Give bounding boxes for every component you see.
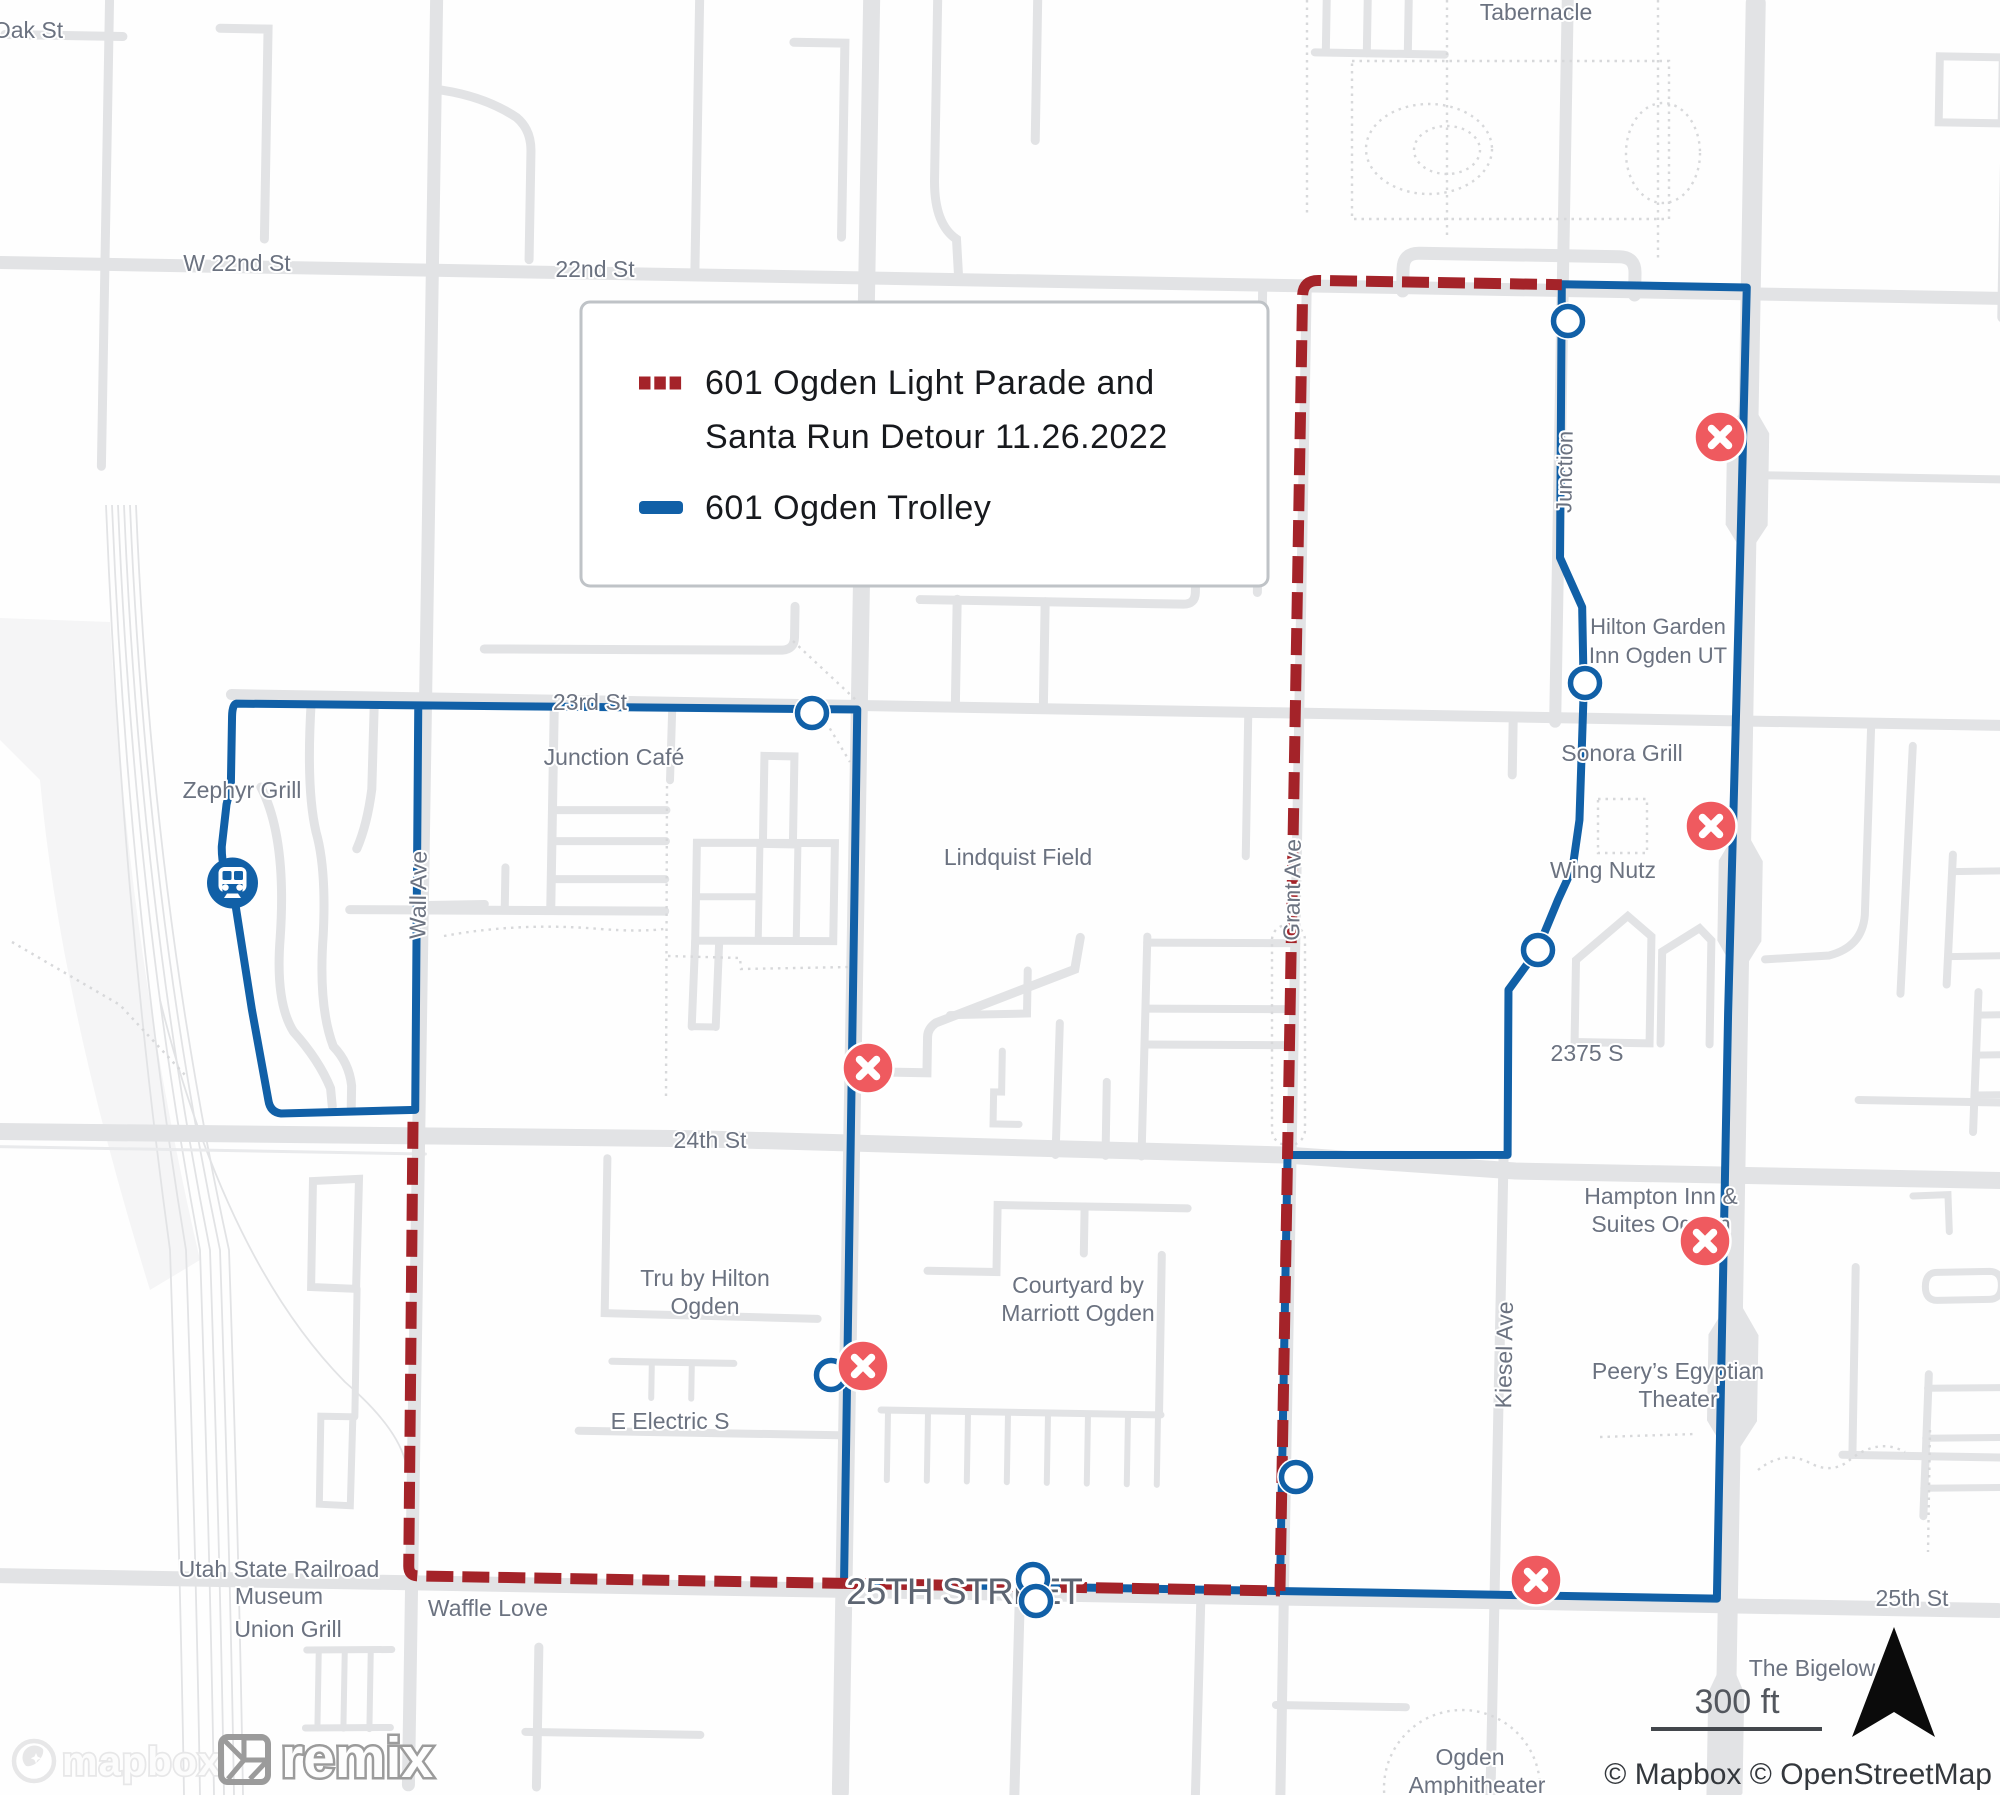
- svg-text:Utah State Railroad: Utah State Railroad: [179, 1556, 380, 1582]
- svg-text:601 Ogden Light Parade and: 601 Ogden Light Parade and: [705, 364, 1155, 402]
- svg-text:Tabernacle: Tabernacle: [1480, 0, 1593, 25]
- svg-text:Junction Café: Junction Café: [544, 744, 685, 770]
- svg-text:Museum: Museum: [235, 1583, 323, 1609]
- svg-text:Wing Nutz: Wing Nutz: [1550, 857, 1656, 883]
- svg-text:© Mapbox © OpenStreetMap: © Mapbox © OpenStreetMap: [1604, 1758, 1992, 1791]
- svg-text:Amphitheater: Amphitheater: [1409, 1772, 1546, 1795]
- svg-text:The Bigelow: The Bigelow: [1749, 1655, 1876, 1681]
- svg-text:Courtyard by: Courtyard by: [1012, 1272, 1144, 1298]
- svg-text:Waffle Love: Waffle Love: [428, 1595, 548, 1621]
- svg-text:Kiesel Ave: Kiesel Ave: [1490, 1301, 1518, 1408]
- svg-text:23rd St: 23rd St: [553, 689, 628, 715]
- svg-text:E Electric S: E Electric S: [611, 1408, 730, 1434]
- svg-text:Ogden: Ogden: [670, 1293, 739, 1319]
- svg-text:Hilton Garden: Hilton Garden: [1590, 614, 1726, 639]
- svg-text:Inn Ogden UT: Inn Ogden UT: [1589, 643, 1727, 668]
- svg-text:mapbox: mapbox: [62, 1740, 221, 1784]
- svg-text:Theater: Theater: [1638, 1386, 1718, 1412]
- svg-text:Union Grill: Union Grill: [234, 1616, 341, 1642]
- svg-text:remix: remix: [281, 1726, 433, 1790]
- svg-text:24th St: 24th St: [674, 1127, 747, 1153]
- svg-text:Oak St: Oak St: [0, 17, 64, 43]
- svg-text:300 ft: 300 ft: [1694, 1683, 1780, 1721]
- svg-text:Wall Ave: Wall Ave: [404, 851, 432, 940]
- svg-text:Santa Run Detour 11.26.2022: Santa Run Detour 11.26.2022: [705, 418, 1168, 456]
- svg-text:601 Ogden Trolley: 601 Ogden Trolley: [705, 489, 991, 527]
- svg-text:Junction: Junction: [1551, 431, 1577, 513]
- svg-text:Sonora Grill: Sonora Grill: [1561, 740, 1682, 766]
- svg-text:Tru by Hilton: Tru by Hilton: [640, 1265, 770, 1291]
- svg-text:Zephyr Grill: Zephyr Grill: [183, 777, 302, 803]
- svg-text:Grant Ave: Grant Ave: [1278, 839, 1306, 941]
- svg-text:22nd St: 22nd St: [555, 256, 635, 282]
- svg-text:W 22nd St: W 22nd St: [183, 250, 291, 276]
- svg-text:Lindquist Field: Lindquist Field: [944, 844, 1092, 870]
- svg-text:25th St: 25th St: [1876, 1585, 1949, 1611]
- svg-text:Marriott Ogden: Marriott Ogden: [1001, 1300, 1154, 1326]
- svg-text:Peery’s Egyptian: Peery’s Egyptian: [1592, 1358, 1764, 1384]
- svg-text:Hampton Inn &: Hampton Inn &: [1584, 1183, 1737, 1209]
- svg-text:2375 S: 2375 S: [1551, 1040, 1624, 1066]
- svg-text:Ogden: Ogden: [1435, 1744, 1504, 1770]
